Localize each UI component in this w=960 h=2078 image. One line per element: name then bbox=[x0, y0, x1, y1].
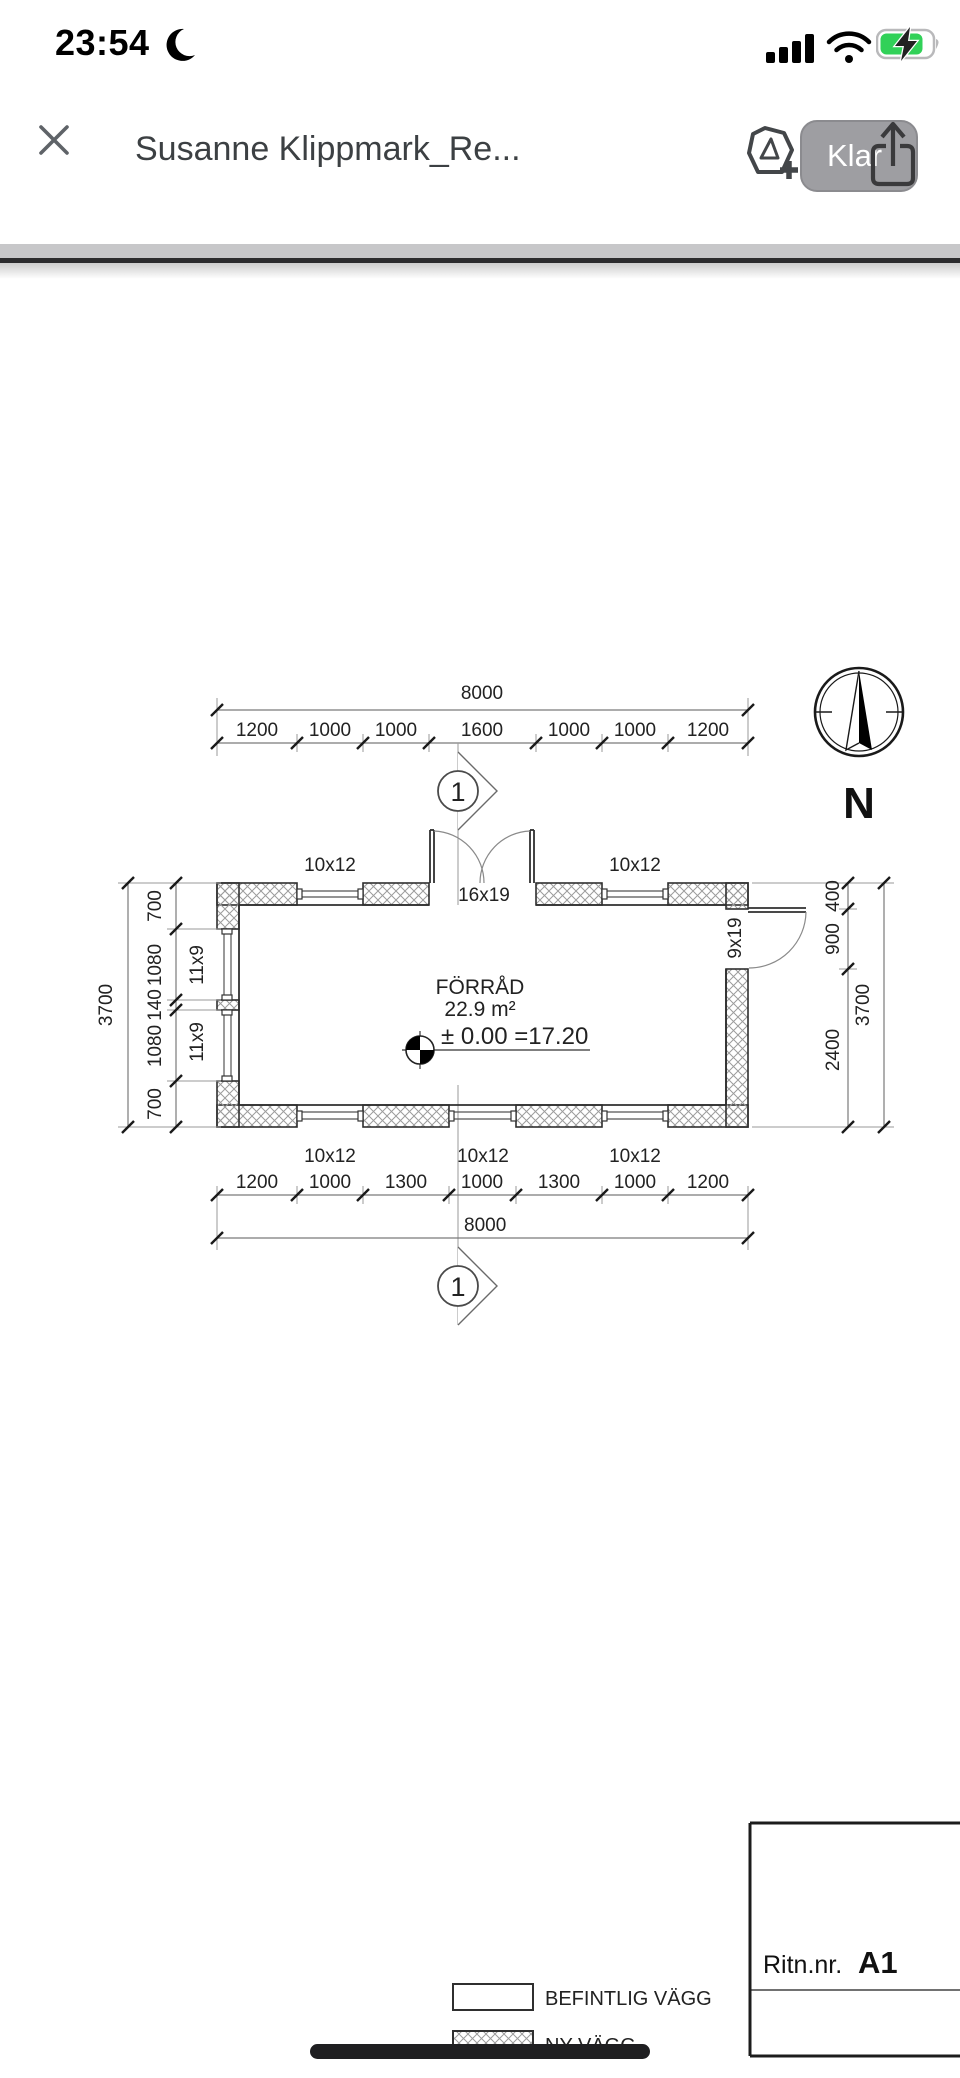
dim-bottom-5: 1300 bbox=[538, 1172, 580, 1193]
dim-top-3: 1000 bbox=[375, 720, 417, 741]
left-dimension-block: 3700 700 1080 140 1080 700 bbox=[96, 877, 221, 1133]
room-level: ± 0.00 =17.20 bbox=[441, 1023, 588, 1050]
dim-bottom-3: 1300 bbox=[385, 1172, 427, 1193]
dim-left-1: 700 bbox=[145, 890, 166, 922]
dim-right-3: 2400 bbox=[823, 1029, 844, 1071]
north-label: N bbox=[843, 779, 875, 828]
floor-plan-drawing: 8000 1200 1000 1000 1600 1000 1000 1200 … bbox=[0, 0, 960, 2078]
home-indicator[interactable] bbox=[310, 2044, 650, 2059]
dim-top-2: 1000 bbox=[309, 720, 351, 741]
dim-bottom-total: 8000 bbox=[464, 1215, 506, 1236]
window-label-top-2: 10x12 bbox=[609, 855, 661, 876]
title-block: Ritn.nr. A1 bbox=[750, 1823, 960, 2056]
north-arrow: N bbox=[815, 668, 903, 828]
drawing-number: A1 bbox=[858, 1945, 898, 1980]
legend-existing-wall: BEFINTLIG VÄGG bbox=[545, 1988, 712, 2010]
section-marker-top: 1 bbox=[438, 743, 497, 905]
dim-top-7: 1200 bbox=[687, 720, 729, 741]
dim-top-5: 1000 bbox=[548, 720, 590, 741]
dim-top-total: 8000 bbox=[461, 683, 503, 704]
dim-top-6: 1000 bbox=[614, 720, 656, 741]
room-area: 22.9 m² bbox=[444, 998, 515, 1021]
top-dimension-block: 8000 1200 1000 1000 1600 1000 1000 1200 bbox=[211, 683, 754, 756]
bottom-dimension-block: 1200 1000 1300 1000 1300 1000 1200 8000 bbox=[211, 1172, 754, 1250]
door-label-top: 16x19 bbox=[458, 885, 510, 906]
right-dimension-block: 400 900 2400 3700 bbox=[752, 877, 894, 1133]
dim-left-3: 140 bbox=[145, 989, 166, 1021]
room-label: FÖRRÅD 22.9 m² ± 0.00 =17.20 bbox=[402, 976, 590, 1069]
double-door-top bbox=[430, 830, 534, 883]
dim-left-total: 3700 bbox=[96, 984, 117, 1026]
dim-bottom-1: 1200 bbox=[236, 1172, 278, 1193]
dim-bottom-2: 1000 bbox=[309, 1172, 351, 1193]
window-label-top-1: 10x12 bbox=[304, 855, 356, 876]
dim-right-2: 900 bbox=[823, 923, 844, 955]
dim-left-4: 1080 bbox=[145, 1025, 166, 1067]
dim-top-4: 1600 bbox=[461, 720, 503, 741]
dim-bottom-4: 1000 bbox=[461, 1172, 503, 1193]
title-block-label: Ritn.nr. bbox=[763, 1951, 842, 1979]
section-number-bottom: 1 bbox=[450, 1272, 465, 1302]
room-name: FÖRRÅD bbox=[436, 976, 525, 999]
door-label-right: 9x19 bbox=[725, 917, 746, 958]
window-label-bottom-1: 10x12 bbox=[304, 1146, 356, 1167]
dim-right-1: 400 bbox=[823, 880, 844, 912]
dim-top-1: 1200 bbox=[236, 720, 278, 741]
section-number-top: 1 bbox=[450, 777, 465, 807]
window-label-left-2: 11x9 bbox=[187, 1022, 208, 1062]
window-label-bottom-3: 10x12 bbox=[609, 1146, 661, 1167]
window-label-left-1: 11x9 bbox=[187, 945, 208, 985]
dim-left-5: 700 bbox=[145, 1088, 166, 1120]
window-label-bottom-2: 10x12 bbox=[457, 1146, 509, 1167]
dim-left-2: 1080 bbox=[145, 944, 166, 986]
door-right bbox=[748, 908, 806, 968]
dim-right-total: 3700 bbox=[853, 984, 874, 1026]
dim-bottom-6: 1000 bbox=[614, 1172, 656, 1193]
dim-bottom-7: 1200 bbox=[687, 1172, 729, 1193]
